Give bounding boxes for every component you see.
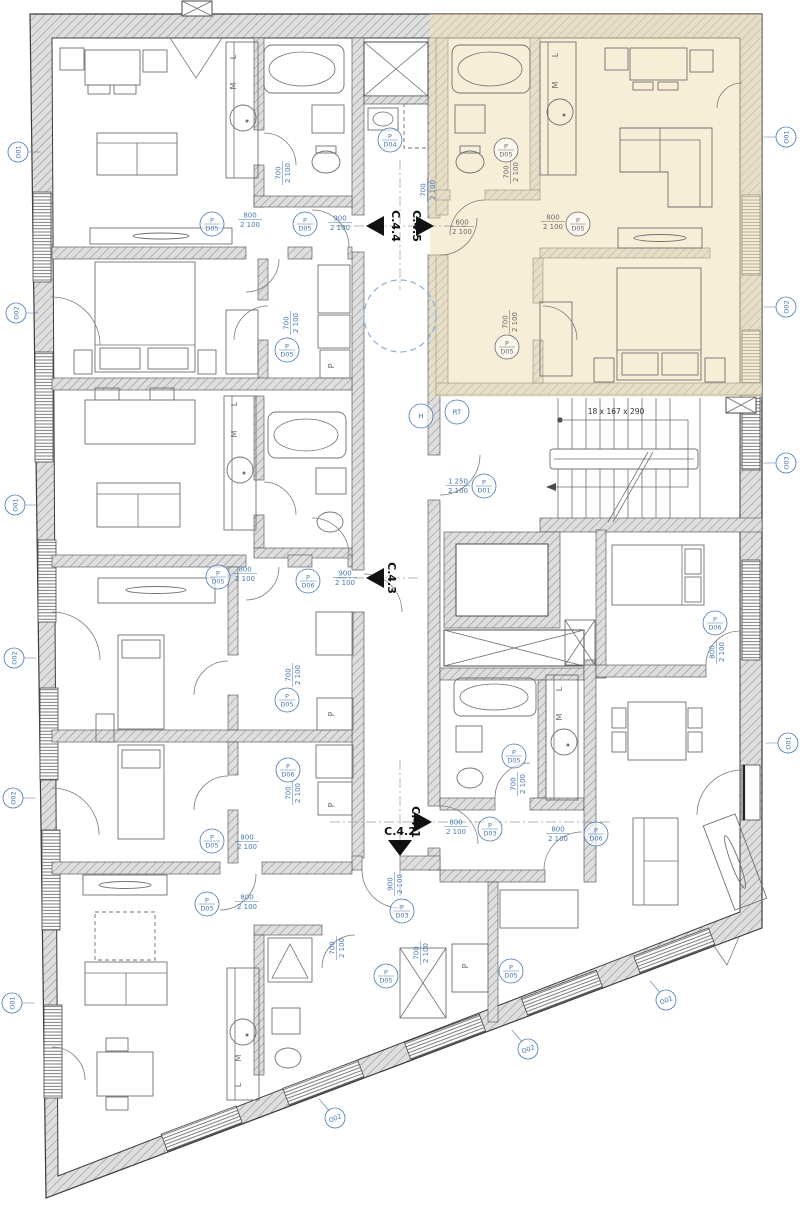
svg-text:P: P — [384, 969, 388, 977]
svg-text:D05: D05 — [500, 348, 513, 356]
svg-text:O02: O02 — [10, 791, 18, 804]
room-letter: P — [327, 363, 336, 368]
svg-text:2 100: 2 100 — [292, 313, 300, 333]
door-tag: PD05 — [275, 338, 299, 362]
window-tag: O02 — [319, 1099, 345, 1128]
svg-text:D01: D01 — [477, 487, 490, 495]
svg-text:2 100: 2 100 — [338, 938, 346, 958]
svg-text:O01: O01 — [9, 996, 17, 1009]
svg-text:P: P — [286, 763, 290, 771]
window-tag: O01 — [766, 733, 798, 753]
door-dimension-label: 7002 100 — [329, 936, 347, 960]
svg-text:800: 800 — [243, 212, 256, 220]
svg-text:D03: D03 — [395, 912, 408, 920]
door-tag: PD04 — [378, 128, 402, 152]
window-tag: O02 — [4, 648, 36, 668]
svg-text:D05: D05 — [280, 701, 293, 709]
door-dimension-label: 8002 100 — [546, 826, 570, 844]
window-tag: O01 — [650, 981, 676, 1010]
door-dimension-label: 7002 100 — [283, 311, 301, 335]
svg-text:700: 700 — [285, 786, 293, 799]
svg-text:900: 900 — [333, 215, 346, 223]
svg-text:P: P — [505, 340, 509, 348]
svg-text:P: P — [509, 964, 513, 972]
door-dimension-label: 8002 100 — [238, 212, 262, 230]
svg-text:O01: O01 — [783, 130, 791, 143]
svg-text:2 100: 2 100 — [548, 835, 568, 843]
corridor-reference-circle — [364, 280, 436, 352]
svg-text:O01: O01 — [12, 498, 20, 511]
door-tag: PD05 — [499, 959, 523, 983]
svg-text:700: 700 — [502, 315, 510, 328]
svg-text:P: P — [216, 570, 220, 578]
svg-text:P: P — [285, 343, 289, 351]
svg-text:D05: D05 — [280, 351, 293, 359]
svg-text:D03: D03 — [483, 830, 496, 838]
door-dimension-label: 7002 100 — [510, 772, 528, 796]
svg-text:D05: D05 — [379, 977, 392, 985]
door-dimension-label: 8002 100 — [235, 894, 259, 912]
svg-text:D05: D05 — [200, 905, 213, 913]
room-letter: M — [229, 82, 238, 89]
room-letter: L — [229, 54, 238, 59]
svg-text:2 100: 2 100 — [294, 665, 302, 685]
svg-text:2 100: 2 100 — [284, 163, 292, 183]
section-label: C.4.5 — [410, 210, 423, 242]
svg-text:P: P — [400, 904, 404, 912]
unit-a-furniture — [60, 42, 350, 378]
svg-text:P: P — [482, 479, 486, 487]
door-dimension-label: 9002 100 — [328, 215, 352, 233]
svg-text:D06: D06 — [281, 771, 294, 779]
svg-text:D06: D06 — [708, 624, 721, 632]
window-tag: O01 — [764, 127, 796, 147]
door-tag: PD05 — [206, 565, 230, 589]
svg-text:700: 700 — [275, 166, 283, 179]
svg-text:O02: O02 — [11, 651, 19, 664]
window-tag: O02 — [764, 297, 796, 317]
room-letter: L — [555, 686, 564, 691]
svg-text:900: 900 — [387, 877, 395, 890]
svg-text:800: 800 — [240, 894, 253, 902]
door-dimension-label: 7002 100 — [420, 178, 438, 202]
door-dimension-label: 9002 100 — [333, 570, 357, 588]
svg-text:O03: O03 — [783, 456, 791, 469]
door-dimension-label: 8002 100 — [444, 819, 468, 837]
door-tag: PD05 — [200, 212, 224, 236]
svg-text:2 100: 2 100 — [718, 642, 726, 662]
door-dimension-label: 9002 100 — [387, 872, 405, 896]
door-tag: PD06 — [584, 822, 608, 846]
door-tag: PD05 — [495, 335, 519, 359]
door-dimension-label: 8002 100 — [709, 640, 727, 664]
door-tag: PD01 — [472, 474, 496, 498]
svg-text:2 100: 2 100 — [330, 224, 350, 232]
window-tag: O02 — [512, 1030, 538, 1059]
svg-text:2 100: 2 100 — [235, 575, 255, 583]
svg-text:2 100: 2 100 — [294, 783, 302, 803]
svg-text:O01: O01 — [785, 736, 793, 749]
svg-text:P: P — [303, 217, 307, 225]
svg-text:P: P — [713, 616, 717, 624]
door-tag: PD06 — [296, 569, 320, 593]
svg-text:2 100: 2 100 — [240, 221, 260, 229]
svg-text:P: P — [512, 749, 516, 757]
room-letter: P — [327, 802, 336, 807]
svg-text:P: P — [285, 693, 289, 701]
window-tag: O03 — [764, 453, 796, 473]
svg-text:D05: D05 — [205, 225, 218, 233]
installation-shaft — [444, 532, 560, 628]
svg-text:2 100: 2 100 — [519, 774, 527, 794]
svg-text:D05: D05 — [205, 842, 218, 850]
door-tag: PD05 — [195, 892, 219, 916]
door-tag: PD03 — [478, 817, 502, 841]
door-tag: PD05 — [200, 829, 224, 853]
svg-text:700: 700 — [283, 316, 291, 329]
svg-text:D05: D05 — [507, 757, 520, 765]
door-dimension-label: 7002 100 — [285, 781, 303, 805]
svg-text:P: P — [504, 143, 508, 151]
svg-text:P: P — [388, 133, 392, 141]
floor-plan-drawing: 8002 1009002 1006002 1008002 1007002 100… — [0, 0, 800, 1214]
door-tag: PD05 — [566, 212, 590, 236]
section-label: C.4.2 — [384, 825, 416, 838]
svg-text:D04: D04 — [383, 141, 396, 149]
svg-text:700: 700 — [510, 777, 518, 790]
window-tag: O02 — [3, 788, 35, 808]
svg-text:600: 600 — [455, 219, 468, 227]
svg-text:O02: O02 — [783, 300, 791, 313]
svg-text:P: P — [210, 834, 214, 842]
window-tag: O01 — [5, 495, 37, 515]
chimney-box — [182, 1, 212, 16]
svg-text:2 100: 2 100 — [511, 312, 519, 332]
door-tag: RT — [445, 400, 469, 424]
door-tag: PD03 — [390, 899, 414, 923]
svg-text:P: P — [488, 822, 492, 830]
svg-text:700: 700 — [420, 183, 428, 196]
staircase — [546, 398, 700, 522]
stair-dimension-note: 18 x 167 x 290 — [588, 407, 645, 416]
svg-text:2 100: 2 100 — [237, 843, 257, 851]
svg-text:700: 700 — [285, 668, 293, 681]
svg-text:D05: D05 — [504, 972, 517, 980]
svg-text:800: 800 — [709, 645, 717, 658]
svg-text:2 100: 2 100 — [448, 487, 468, 495]
svg-text:800: 800 — [546, 214, 559, 222]
svg-text:2 100: 2 100 — [429, 180, 437, 200]
svg-text:H: H — [418, 413, 423, 421]
door-tag: PD05 — [374, 964, 398, 988]
door-tag: PD06 — [703, 611, 727, 635]
svg-text:900: 900 — [338, 570, 351, 578]
svg-text:2 100: 2 100 — [335, 579, 355, 587]
svg-text:700: 700 — [329, 941, 337, 954]
room-letter: L — [230, 401, 239, 406]
svg-text:D05: D05 — [298, 225, 311, 233]
svg-text:P: P — [576, 217, 580, 225]
door-dimension-label: 7002 100 — [285, 663, 303, 687]
door-tag: PD05 — [502, 744, 526, 768]
svg-text:2 100: 2 100 — [396, 874, 404, 894]
svg-text:800: 800 — [240, 834, 253, 842]
door-tag: PD06 — [276, 758, 300, 782]
svg-text:800: 800 — [449, 819, 462, 827]
svg-text:D05: D05 — [571, 225, 584, 233]
roof-vent-box — [726, 397, 756, 413]
svg-text:2 100: 2 100 — [452, 228, 472, 236]
svg-text:D05: D05 — [211, 578, 224, 586]
svg-text:RT: RT — [453, 409, 462, 417]
door-dimension-label: 7002 100 — [275, 161, 293, 185]
elevator-shaft — [364, 42, 428, 104]
svg-text:800: 800 — [551, 826, 564, 834]
svg-text:P: P — [205, 897, 209, 905]
svg-text:D05: D05 — [499, 151, 512, 159]
section-label: C.4.3 — [385, 562, 398, 594]
svg-text:O02: O02 — [13, 306, 21, 319]
room-letter: P — [327, 711, 336, 716]
svg-text:P: P — [210, 217, 214, 225]
room-letter: M — [234, 1054, 243, 1061]
door-tag: H — [409, 404, 433, 428]
svg-text:2 100: 2 100 — [237, 903, 257, 911]
svg-text:2 100: 2 100 — [446, 828, 466, 836]
svg-text:2 100: 2 100 — [512, 162, 520, 182]
svg-text:2 100: 2 100 — [543, 223, 563, 231]
svg-text:O01: O01 — [15, 145, 23, 158]
svg-text:800: 800 — [238, 566, 251, 574]
room-letter: L — [551, 52, 560, 57]
svg-text:P: P — [594, 827, 598, 835]
door-dimension-label: 8002 100 — [235, 834, 259, 852]
svg-text:2 100: 2 100 — [422, 943, 430, 963]
room-letter: L — [234, 1082, 243, 1087]
svg-text:700: 700 — [503, 165, 511, 178]
room-letter: M — [551, 81, 560, 88]
room-letter: P — [461, 963, 470, 968]
svg-text:P: P — [306, 574, 310, 582]
svg-text:D06: D06 — [301, 582, 314, 590]
door-tag: PD05 — [275, 688, 299, 712]
room-letter: M — [230, 430, 239, 437]
door-tag: PD05 — [494, 138, 518, 162]
floor-plan-page: 8002 1009002 1006002 1008002 1007002 100… — [0, 0, 800, 1214]
room-letter: M — [555, 713, 564, 720]
vent-shaft — [444, 630, 584, 666]
door-tag: PD05 — [293, 212, 317, 236]
svg-text:700: 700 — [413, 946, 421, 959]
door-dimension-label: 1 2502 100 — [446, 478, 470, 496]
window-tag: O01 — [2, 993, 34, 1013]
svg-text:1 250: 1 250 — [448, 478, 468, 486]
section-label: C.4.4 — [389, 210, 402, 242]
svg-text:D06: D06 — [589, 835, 602, 843]
